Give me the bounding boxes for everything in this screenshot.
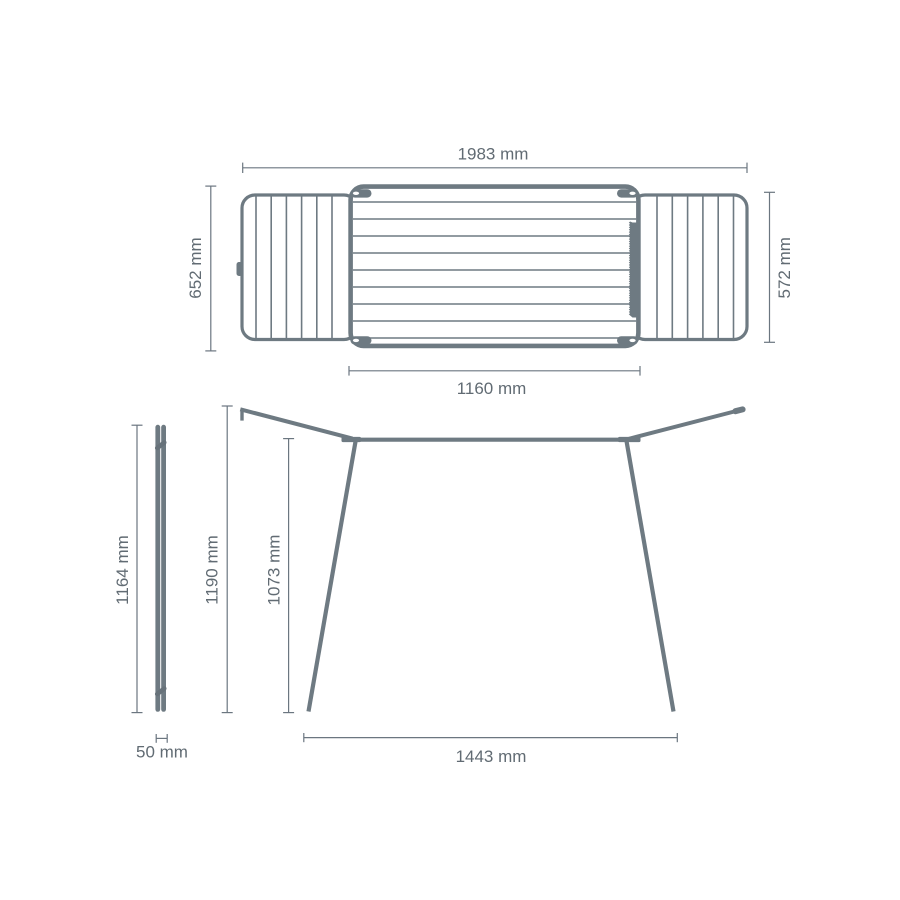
svg-text:50 mm: 50 mm (136, 743, 188, 762)
svg-text:1190 mm: 1190 mm (203, 535, 222, 605)
svg-text:652 mm: 652 mm (186, 237, 205, 298)
svg-text:1073 mm: 1073 mm (264, 535, 283, 606)
svg-text:1443 mm: 1443 mm (456, 747, 527, 766)
svg-text:1160 mm: 1160 mm (457, 379, 527, 398)
svg-text:572 mm: 572 mm (775, 237, 794, 298)
svg-text:1983 mm: 1983 mm (458, 145, 529, 164)
svg-text:1164 mm: 1164 mm (113, 535, 132, 605)
